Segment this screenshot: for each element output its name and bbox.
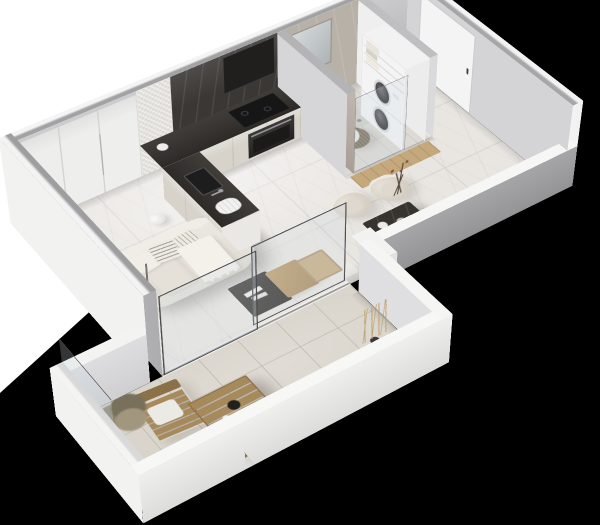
screenshot-root xyxy=(0,0,600,525)
burner xyxy=(262,105,273,112)
plate-stack xyxy=(212,195,245,216)
burner xyxy=(239,110,250,117)
isometric-scene xyxy=(0,0,600,525)
berry xyxy=(391,169,394,173)
apartment-plan xyxy=(0,40,600,525)
canister xyxy=(155,142,171,152)
wardrobe-handle xyxy=(99,134,104,175)
door-handle xyxy=(466,68,468,75)
berry xyxy=(405,159,408,163)
